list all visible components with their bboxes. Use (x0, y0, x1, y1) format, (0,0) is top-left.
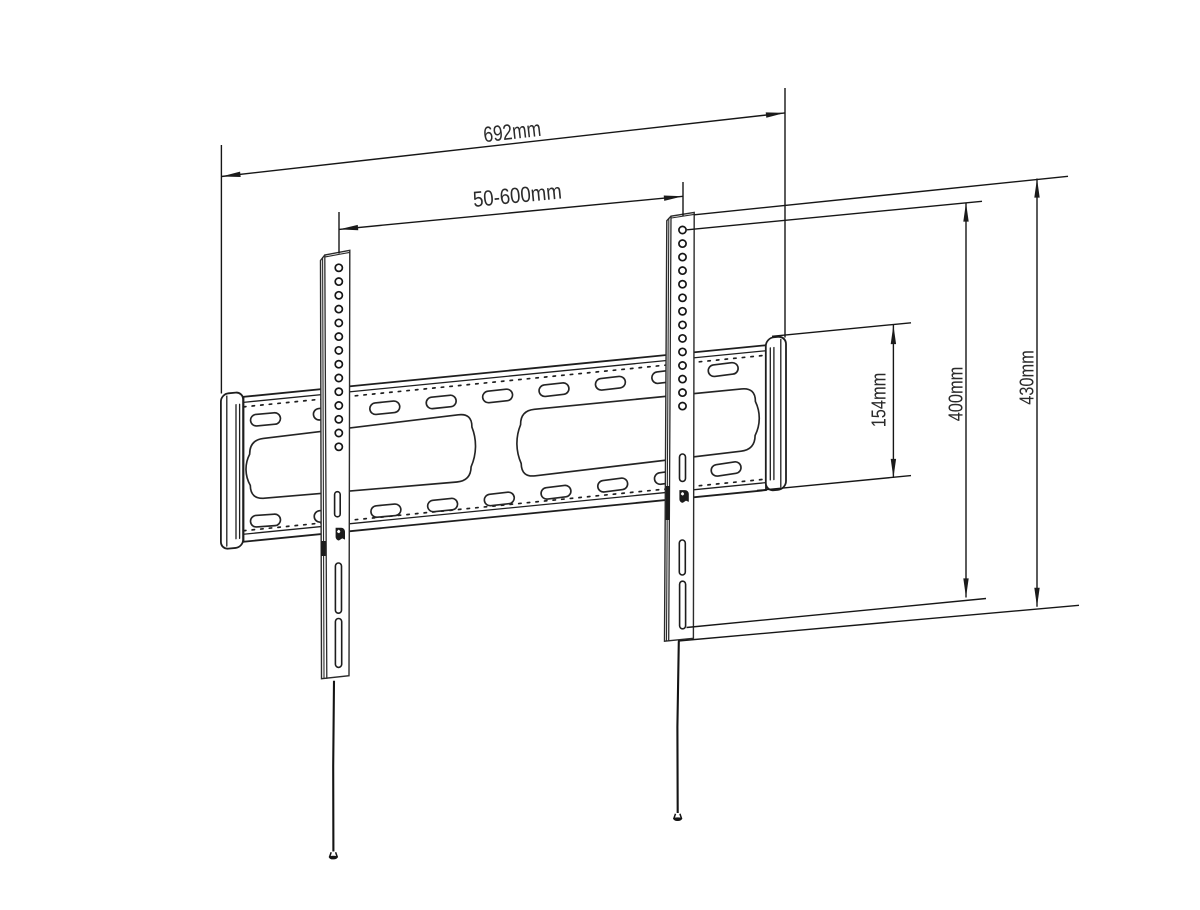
svg-text:154mm: 154mm (867, 373, 890, 428)
svg-text:430mm: 430mm (1015, 350, 1038, 405)
svg-text:400mm: 400mm (944, 367, 967, 422)
